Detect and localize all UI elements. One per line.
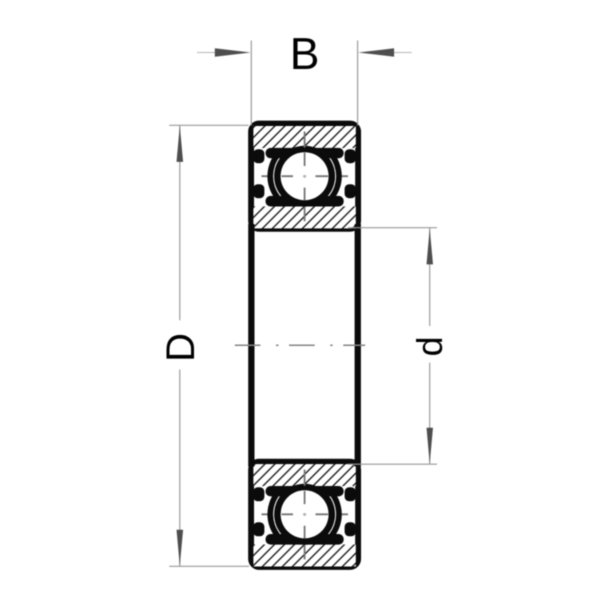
svg-text:d: d <box>410 336 450 356</box>
svg-text:D: D <box>159 333 203 362</box>
svg-text:B: B <box>290 30 320 79</box>
